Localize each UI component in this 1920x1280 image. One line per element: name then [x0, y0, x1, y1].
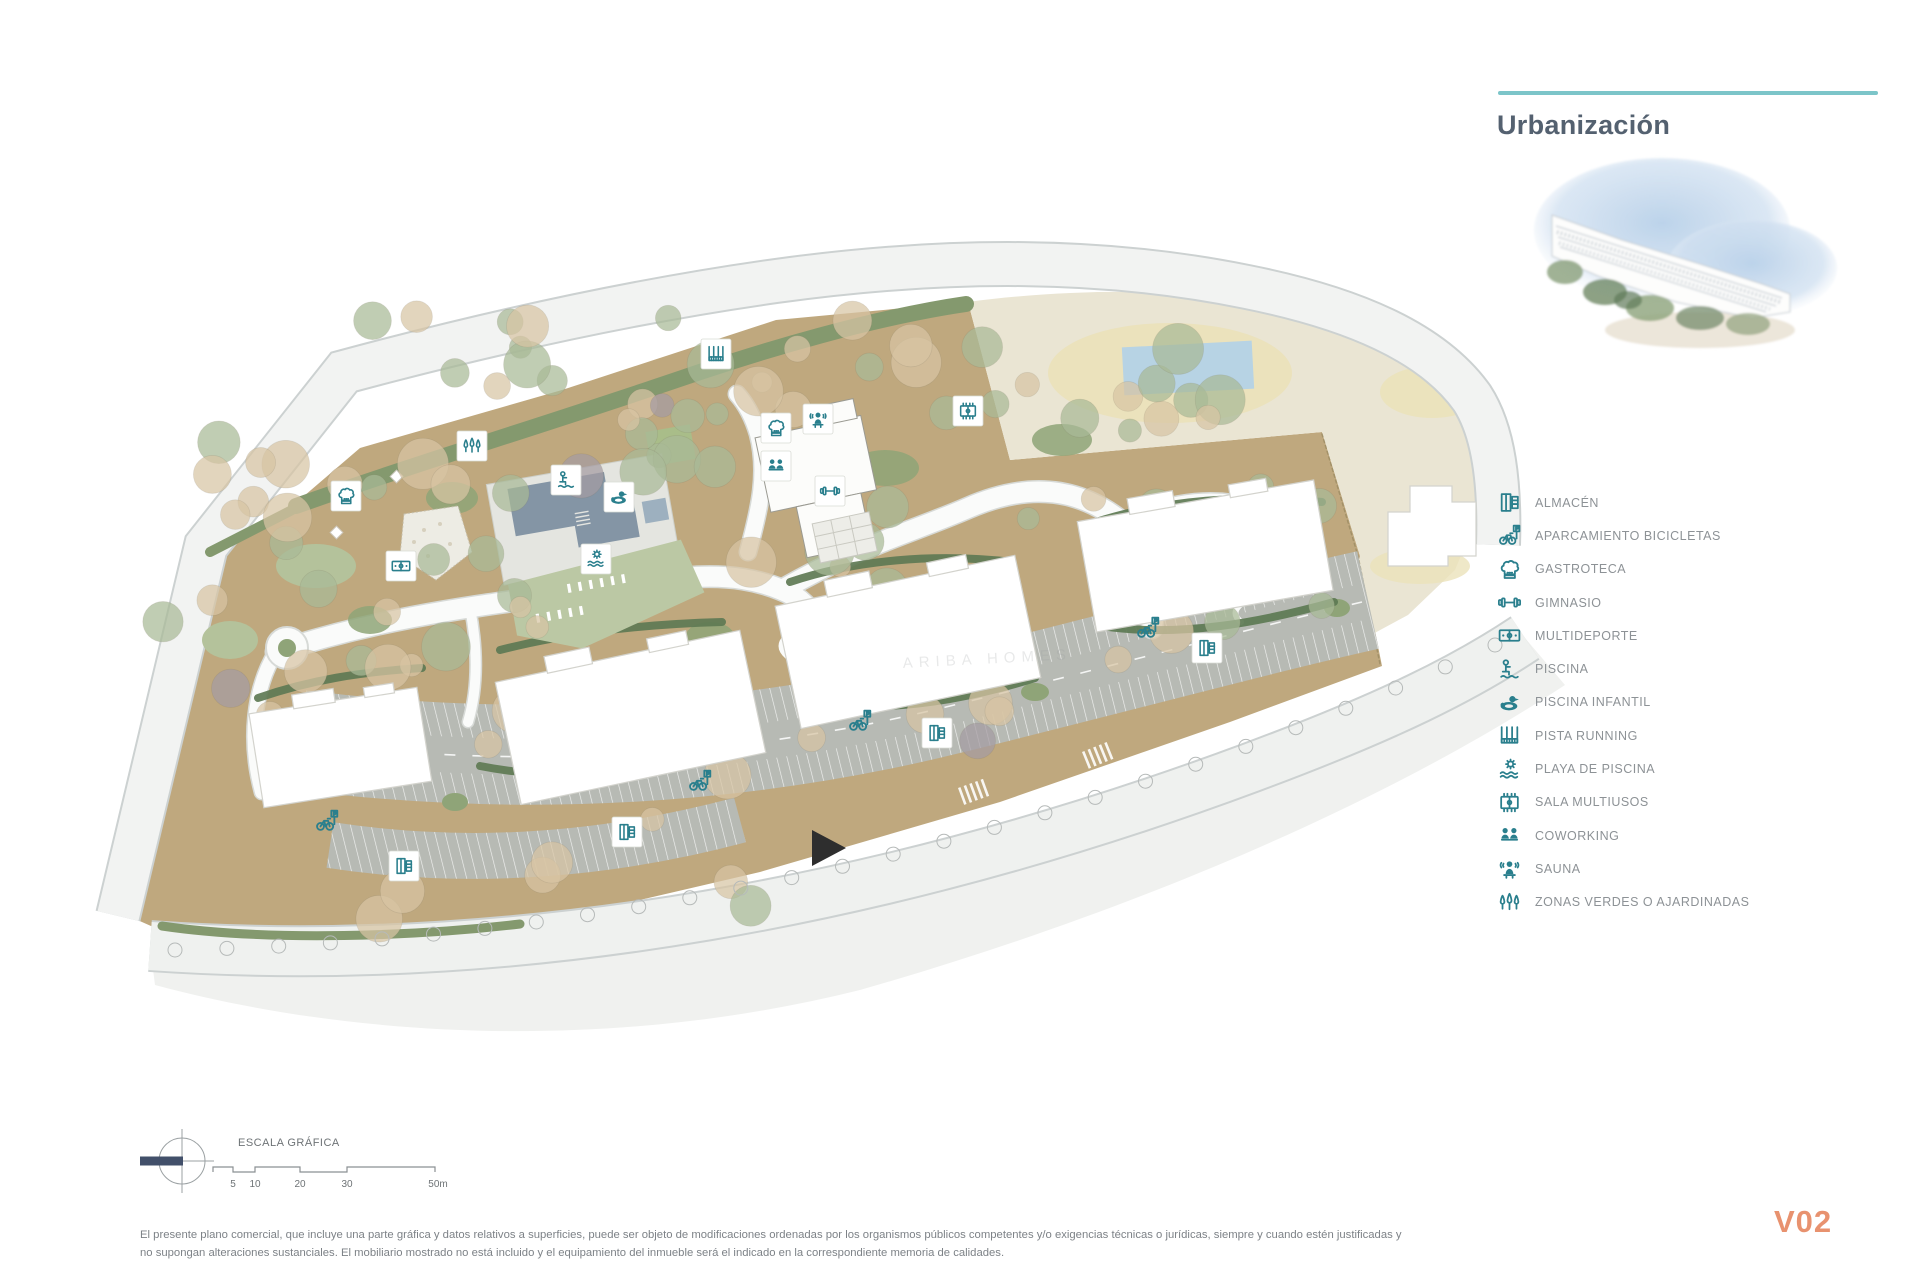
legend-label: PISCINA — [1535, 662, 1589, 676]
scale-bar-title: ESCALA GRÁFICA — [238, 1136, 340, 1149]
running-track-icon — [1497, 723, 1522, 748]
legend-label: ZONAS VERDES O AJARDINADAS — [1535, 895, 1749, 909]
plan-marker-track-icon — [701, 339, 731, 369]
plan-marker-court-icon — [386, 551, 416, 581]
title-accent-line — [1498, 91, 1878, 95]
dumbbell-icon — [1497, 590, 1522, 615]
hero-rendering — [1534, 158, 1837, 348]
legend: ALMACÉN APARCAMIENTO BICICLETAS GASTROTE… — [1497, 486, 1907, 919]
plan-marker-duck-icon — [604, 482, 634, 512]
plan-marker-chef-icon — [331, 481, 361, 511]
legend-label: APARCAMIENTO BICICLETAS — [1535, 529, 1721, 543]
bicycle-parking-icon — [1497, 523, 1522, 548]
compass — [140, 1129, 214, 1193]
sauna-person-icon — [1497, 856, 1522, 881]
plan-marker-sauna-icon — [803, 404, 833, 434]
legend-item-piscina: PISCINA — [1497, 652, 1907, 685]
plan-marker-trees-icon — [457, 431, 487, 461]
plan-marker-cabinet-icon — [612, 817, 642, 847]
legend-item-piscina-infantil: PISCINA INFANTIL — [1497, 686, 1907, 719]
legend-label: MULTIDEPORTE — [1535, 629, 1638, 643]
duck-float-icon — [1497, 690, 1522, 715]
svg-text:20: 20 — [294, 1179, 306, 1190]
plan-marker-beach-icon — [581, 544, 611, 574]
plan-marker-pool-icon — [551, 465, 581, 495]
plan-marker-cabinet-icon — [922, 718, 952, 748]
legend-item-playa-de-piscina: PLAYA DE PISCINA — [1497, 752, 1907, 785]
legend-label: SAUNA — [1535, 862, 1581, 876]
legend-label: PLAYA DE PISCINA — [1535, 762, 1655, 776]
kids-pool — [642, 498, 669, 524]
legend-label: PISCINA INFANTIL — [1535, 695, 1651, 709]
svg-text:10: 10 — [249, 1179, 261, 1190]
svg-text:50m: 50m — [428, 1179, 447, 1190]
cabinet-icon — [1497, 490, 1522, 515]
plan-marker-cowork-icon — [761, 451, 791, 481]
disclaimer-text: El presente plano comercial, que incluye… — [140, 1227, 1402, 1262]
chef-hat-icon — [1497, 557, 1522, 582]
legend-item-gimnasio: GIMNASIO — [1497, 586, 1907, 619]
legend-item-coworking: COWORKING — [1497, 819, 1907, 852]
legend-item-zonas-verdes: ZONAS VERDES O AJARDINADAS — [1497, 886, 1907, 919]
plan-marker-cabinet-icon — [389, 851, 419, 881]
legend-label: GIMNASIO — [1535, 596, 1602, 610]
plan-marker-multi-icon — [953, 396, 983, 426]
legend-item-almacen: ALMACÉN — [1497, 486, 1907, 519]
legend-label: COWORKING — [1535, 829, 1619, 843]
scale-bar: ESCALA GRÁFICA 5 10 20 30 50m — [213, 1136, 448, 1190]
legend-label: ALMACÉN — [1535, 496, 1599, 510]
foosball-table-icon — [1497, 790, 1522, 815]
legend-item-sauna: SAUNA — [1497, 852, 1907, 885]
legend-label: GASTROTECA — [1535, 562, 1626, 576]
trees-icon — [1497, 890, 1522, 915]
plan-marker-chef-icon — [761, 413, 791, 443]
sports-court-icon — [1497, 623, 1522, 648]
legend-item-gastroteca: GASTROTECA — [1497, 553, 1907, 586]
legend-item-sala-multiusos: SALA MULTIUSOS — [1497, 786, 1907, 819]
legend-item-multideporte: MULTIDEPORTE — [1497, 619, 1907, 652]
legend-label: PISTA RUNNING — [1535, 729, 1638, 743]
plan-marker-gym-icon — [815, 476, 845, 506]
page-title: Urbanización — [1497, 110, 1670, 141]
legend-item-pista-running: PISTA RUNNING — [1497, 719, 1907, 752]
version-label: V02 — [1774, 1204, 1832, 1240]
svg-text:5: 5 — [230, 1179, 236, 1190]
svg-text:30: 30 — [341, 1179, 353, 1190]
plan-marker-cabinet-icon — [1192, 633, 1222, 663]
legend-item-aparcamiento-bicicletas: APARCAMIENTO BICICLETAS — [1497, 519, 1907, 552]
people-table-icon — [1497, 823, 1522, 848]
swimmer-icon — [1497, 657, 1522, 682]
sun-waves-icon — [1497, 757, 1522, 782]
legend-label: SALA MULTIUSOS — [1535, 795, 1649, 809]
